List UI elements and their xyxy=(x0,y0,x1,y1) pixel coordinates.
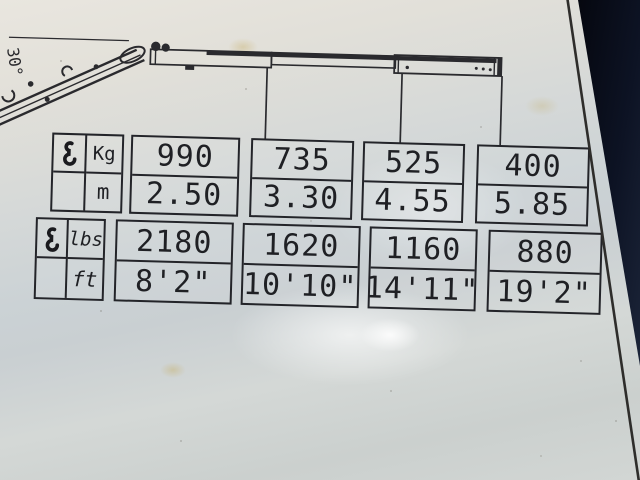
distance-value: 4.55 xyxy=(363,182,462,221)
crane-hook-icon xyxy=(41,224,62,253)
metric-distance-unit: m xyxy=(85,173,121,211)
capacity-box-imperial-3: 1160 14'11" xyxy=(368,226,478,311)
distance-value: 5.85 xyxy=(477,185,587,225)
capacity-box-imperial-2: 1620 10'10" xyxy=(241,223,361,308)
empty-cell xyxy=(36,258,68,298)
weight-value: 735 xyxy=(252,140,352,181)
weight-value: 2180 xyxy=(117,221,232,264)
capacity-box-metric-1: 990 2.50 xyxy=(129,135,240,217)
leader-line xyxy=(265,67,267,139)
weight-value: 880 xyxy=(490,232,601,275)
hook-cell xyxy=(37,219,69,259)
empty-cell xyxy=(52,172,86,210)
boom-tip xyxy=(497,58,502,76)
distance-value: 2.50 xyxy=(131,175,237,214)
weight-value: 400 xyxy=(478,146,588,188)
leader-line xyxy=(400,73,402,143)
distance-value: 19'2" xyxy=(489,272,600,313)
hook-detail xyxy=(62,66,72,76)
crane-load-chart-placard: 30° Kg m 990 2.50 735 3.30 525 4.55 400 xyxy=(0,0,640,480)
weight-value: 990 xyxy=(132,137,238,178)
capacity-box-metric-3: 525 4.55 xyxy=(361,141,465,223)
distance-value: 8'2" xyxy=(116,261,231,302)
placard-content: 30° Kg m 990 2.50 735 3.30 525 4.55 400 xyxy=(0,0,640,480)
weight-value: 525 xyxy=(364,143,463,184)
imperial-header-box: lbs ft xyxy=(34,217,106,301)
leader-line xyxy=(500,76,502,146)
weight-value: 1160 xyxy=(371,228,476,271)
distance-value: 14'11" xyxy=(370,268,475,309)
hook-detail xyxy=(2,90,14,101)
capacity-box-metric-2: 735 3.30 xyxy=(249,138,354,220)
capacity-box-metric-4: 400 5.85 xyxy=(475,144,590,226)
crane-hook-icon xyxy=(59,139,80,167)
imperial-distance-unit: ft xyxy=(67,259,103,299)
dimension-line xyxy=(9,37,129,40)
metric-weight-unit: Kg xyxy=(86,135,122,173)
capacity-box-imperial-1: 2180 8'2" xyxy=(114,219,234,304)
imperial-weight-unit: lbs xyxy=(68,220,104,260)
hook-cell xyxy=(53,135,87,173)
capacity-box-imperial-4: 880 19'2" xyxy=(486,230,602,315)
distance-value: 3.30 xyxy=(251,179,351,218)
metric-header-box: Kg m xyxy=(50,133,124,214)
distance-value: 10'10" xyxy=(243,265,358,306)
weight-value: 1620 xyxy=(244,225,359,268)
